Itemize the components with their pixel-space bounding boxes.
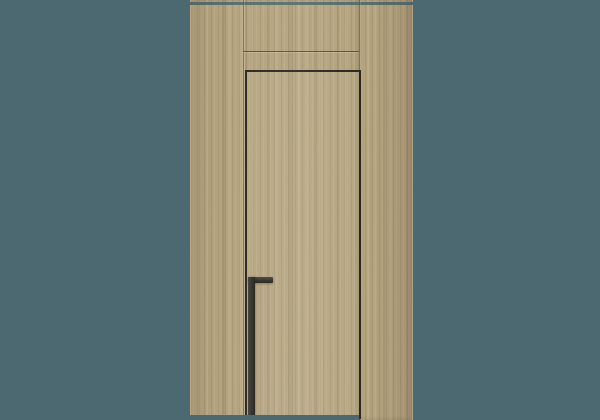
door-gap-left bbox=[245, 70, 247, 415]
ceiling-shadow-gap bbox=[190, 2, 413, 5]
door-pull-handle-stem bbox=[248, 277, 255, 415]
door-gap-top bbox=[245, 70, 361, 72]
wood-wall-panel bbox=[190, 0, 413, 420]
transom-panel-seam bbox=[243, 51, 359, 52]
door-gap-right bbox=[359, 70, 361, 419]
panel-seam-left bbox=[243, 0, 244, 420]
door-floor-gap bbox=[190, 415, 359, 420]
product-photo-stage bbox=[0, 0, 600, 420]
door-leaf bbox=[245, 70, 359, 415]
